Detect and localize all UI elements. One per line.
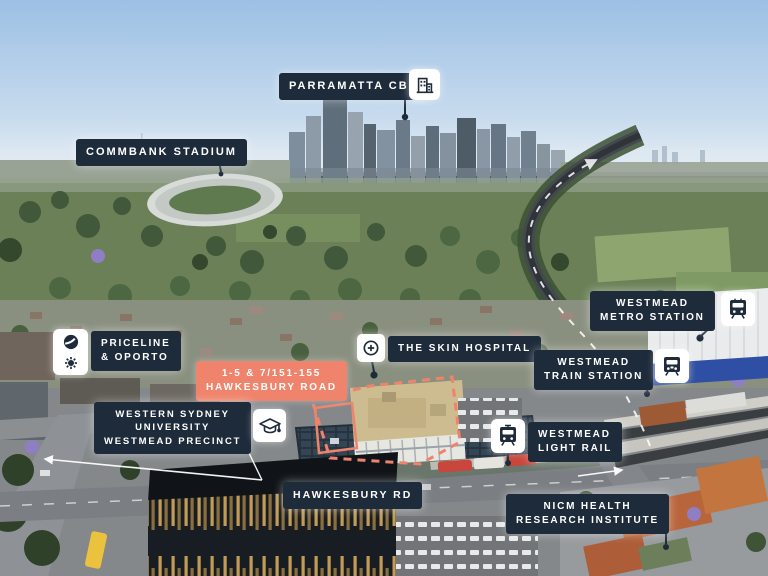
label-line: 1-5 & 7/151-155	[206, 367, 337, 381]
priceline-logo-icon	[61, 332, 81, 352]
priceline-oporto-icon-tile	[53, 329, 88, 375]
wsu-leader	[248, 451, 262, 480]
label-line: UNIVERSITY	[104, 421, 241, 434]
train-icon	[655, 349, 689, 383]
city-buildings-icon	[409, 69, 440, 100]
medical-cross-icon	[357, 334, 385, 362]
label-line: WESTMEAD	[538, 428, 612, 442]
label-westmead-metro-station: WESTMEAD METRO STATION	[590, 291, 715, 331]
label-westmead-light-rail: WESTMEAD LIGHT RAIL	[528, 422, 622, 462]
label-westmead-train-station: WESTMEAD TRAIN STATION	[534, 350, 653, 390]
label-line: RESEARCH INSTITUTE	[516, 514, 659, 528]
label-line: HAWKESBURY ROAD	[206, 381, 337, 395]
graduation-cap-icon	[253, 409, 286, 442]
oporto-sun-icon	[62, 354, 80, 372]
label-hawkesbury-rd: HAWKESBURY RD	[283, 482, 422, 509]
label-skin-hospital: THE SKIN HOSPITAL	[388, 336, 541, 362]
label-commbank-stadium: COMMBANK STADIUM	[76, 139, 247, 166]
label-property-address: 1-5 & 7/151-155 HAWKESBURY ROAD	[196, 361, 347, 401]
label-line: TRAIN STATION	[544, 370, 643, 384]
road-arrow-left	[45, 459, 262, 480]
label-line: WESTMEAD PRECINCT	[104, 435, 241, 448]
metro-train-icon	[721, 292, 755, 326]
aerial-map: PARRAMATTA CBD COMMBANK STADIUM WESTMEAD…	[0, 0, 768, 576]
label-nicm: NICM HEALTH RESEARCH INSTITUTE	[506, 494, 669, 534]
label-wsu-precinct: WESTERN SYDNEY UNIVERSITY WESTMEAD PRECI…	[94, 402, 251, 454]
label-line: WESTERN SYDNEY	[104, 408, 241, 421]
label-line: PRICELINE	[101, 337, 171, 351]
label-line: WESTMEAD	[600, 297, 705, 311]
label-line: WESTMEAD	[544, 356, 643, 370]
label-line: NICM HEALTH	[516, 500, 659, 514]
label-line: & OPORTO	[101, 351, 171, 365]
label-priceline-oporto: PRICELINE & OPORTO	[91, 331, 181, 371]
label-parramatta-cbd: PARRAMATTA CBD	[279, 73, 429, 100]
tram-icon	[491, 419, 525, 453]
label-line: LIGHT RAIL	[538, 442, 612, 456]
label-line: METRO STATION	[600, 311, 705, 325]
road-arrow-right	[578, 470, 622, 476]
